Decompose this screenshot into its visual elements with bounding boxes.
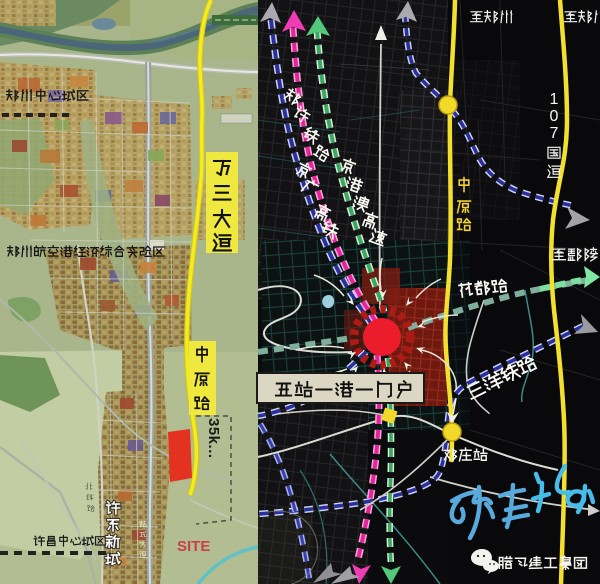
svg-text:1: 1 [550, 91, 559, 108]
svg-text:35k...: 35k... [205, 418, 222, 459]
svg-text:SITE: SITE [177, 538, 210, 555]
svg-text:7: 7 [550, 125, 559, 142]
svg-text:0: 0 [550, 108, 559, 125]
